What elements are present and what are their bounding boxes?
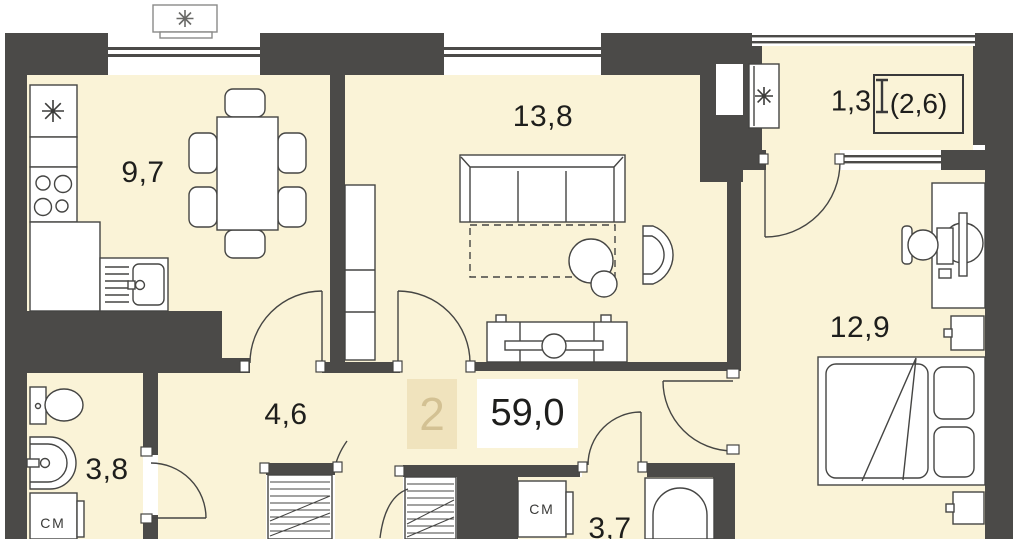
- floorplan: 9,7 13,8 4,6 3,8 3,7 12,9 1,3 СМ СМ 2 59…: [0, 0, 1013, 539]
- room-label-kitchen: 9,7: [121, 158, 164, 188]
- rooms-count-value: 2: [419, 387, 445, 441]
- bed: [818, 357, 985, 485]
- kitchen-counter: [30, 137, 77, 167]
- facade-notch: [716, 64, 743, 115]
- washer-label-2: СМ: [529, 502, 555, 516]
- room-label-bedroom: 12,9: [830, 313, 890, 343]
- room-label-hallway: 4,6: [264, 400, 307, 430]
- ac-balcony-snowflake-icon: [755, 87, 773, 105]
- kitchen-counter-2: [30, 222, 100, 311]
- fridge-snowflake-icon: [42, 100, 64, 122]
- rooms-count-badge: 2: [407, 379, 457, 449]
- sofa: [460, 155, 625, 222]
- desk: [932, 183, 985, 308]
- floorplan-canvas: [0, 0, 1013, 539]
- total-area-box: 59,0: [477, 379, 578, 448]
- ac-outdoor-snowflake-icon: [177, 10, 194, 27]
- living-room-window: [444, 33, 601, 75]
- toilet: [30, 387, 83, 424]
- room-label-living-room: 13,8: [513, 102, 573, 132]
- balcony-dimension-box: (2,6): [873, 74, 964, 134]
- kitchen-window: [106, 33, 260, 75]
- stove: [30, 167, 77, 222]
- room-label-bathroom-2: 3,7: [588, 514, 631, 539]
- height-bracket-icon: [875, 76, 889, 116]
- room-label-balcony: 1,3: [831, 86, 871, 119]
- closet: [268, 475, 332, 539]
- kitchen-sink-unit: [100, 258, 168, 311]
- room-label-bathroom: 3,8: [85, 455, 128, 485]
- bathtub: [645, 478, 714, 539]
- tv-stand: [487, 315, 627, 362]
- total-area-value: 59,0: [491, 392, 565, 435]
- balcony-glazing: [752, 33, 975, 46]
- closet-2: [405, 477, 456, 539]
- bedroom-balcony-window: [840, 150, 941, 170]
- wardrobe: [345, 185, 375, 360]
- balcony-unreduced-area: (2,6): [890, 88, 948, 120]
- washer-label: СМ: [40, 516, 66, 530]
- washbasin: [27, 437, 76, 489]
